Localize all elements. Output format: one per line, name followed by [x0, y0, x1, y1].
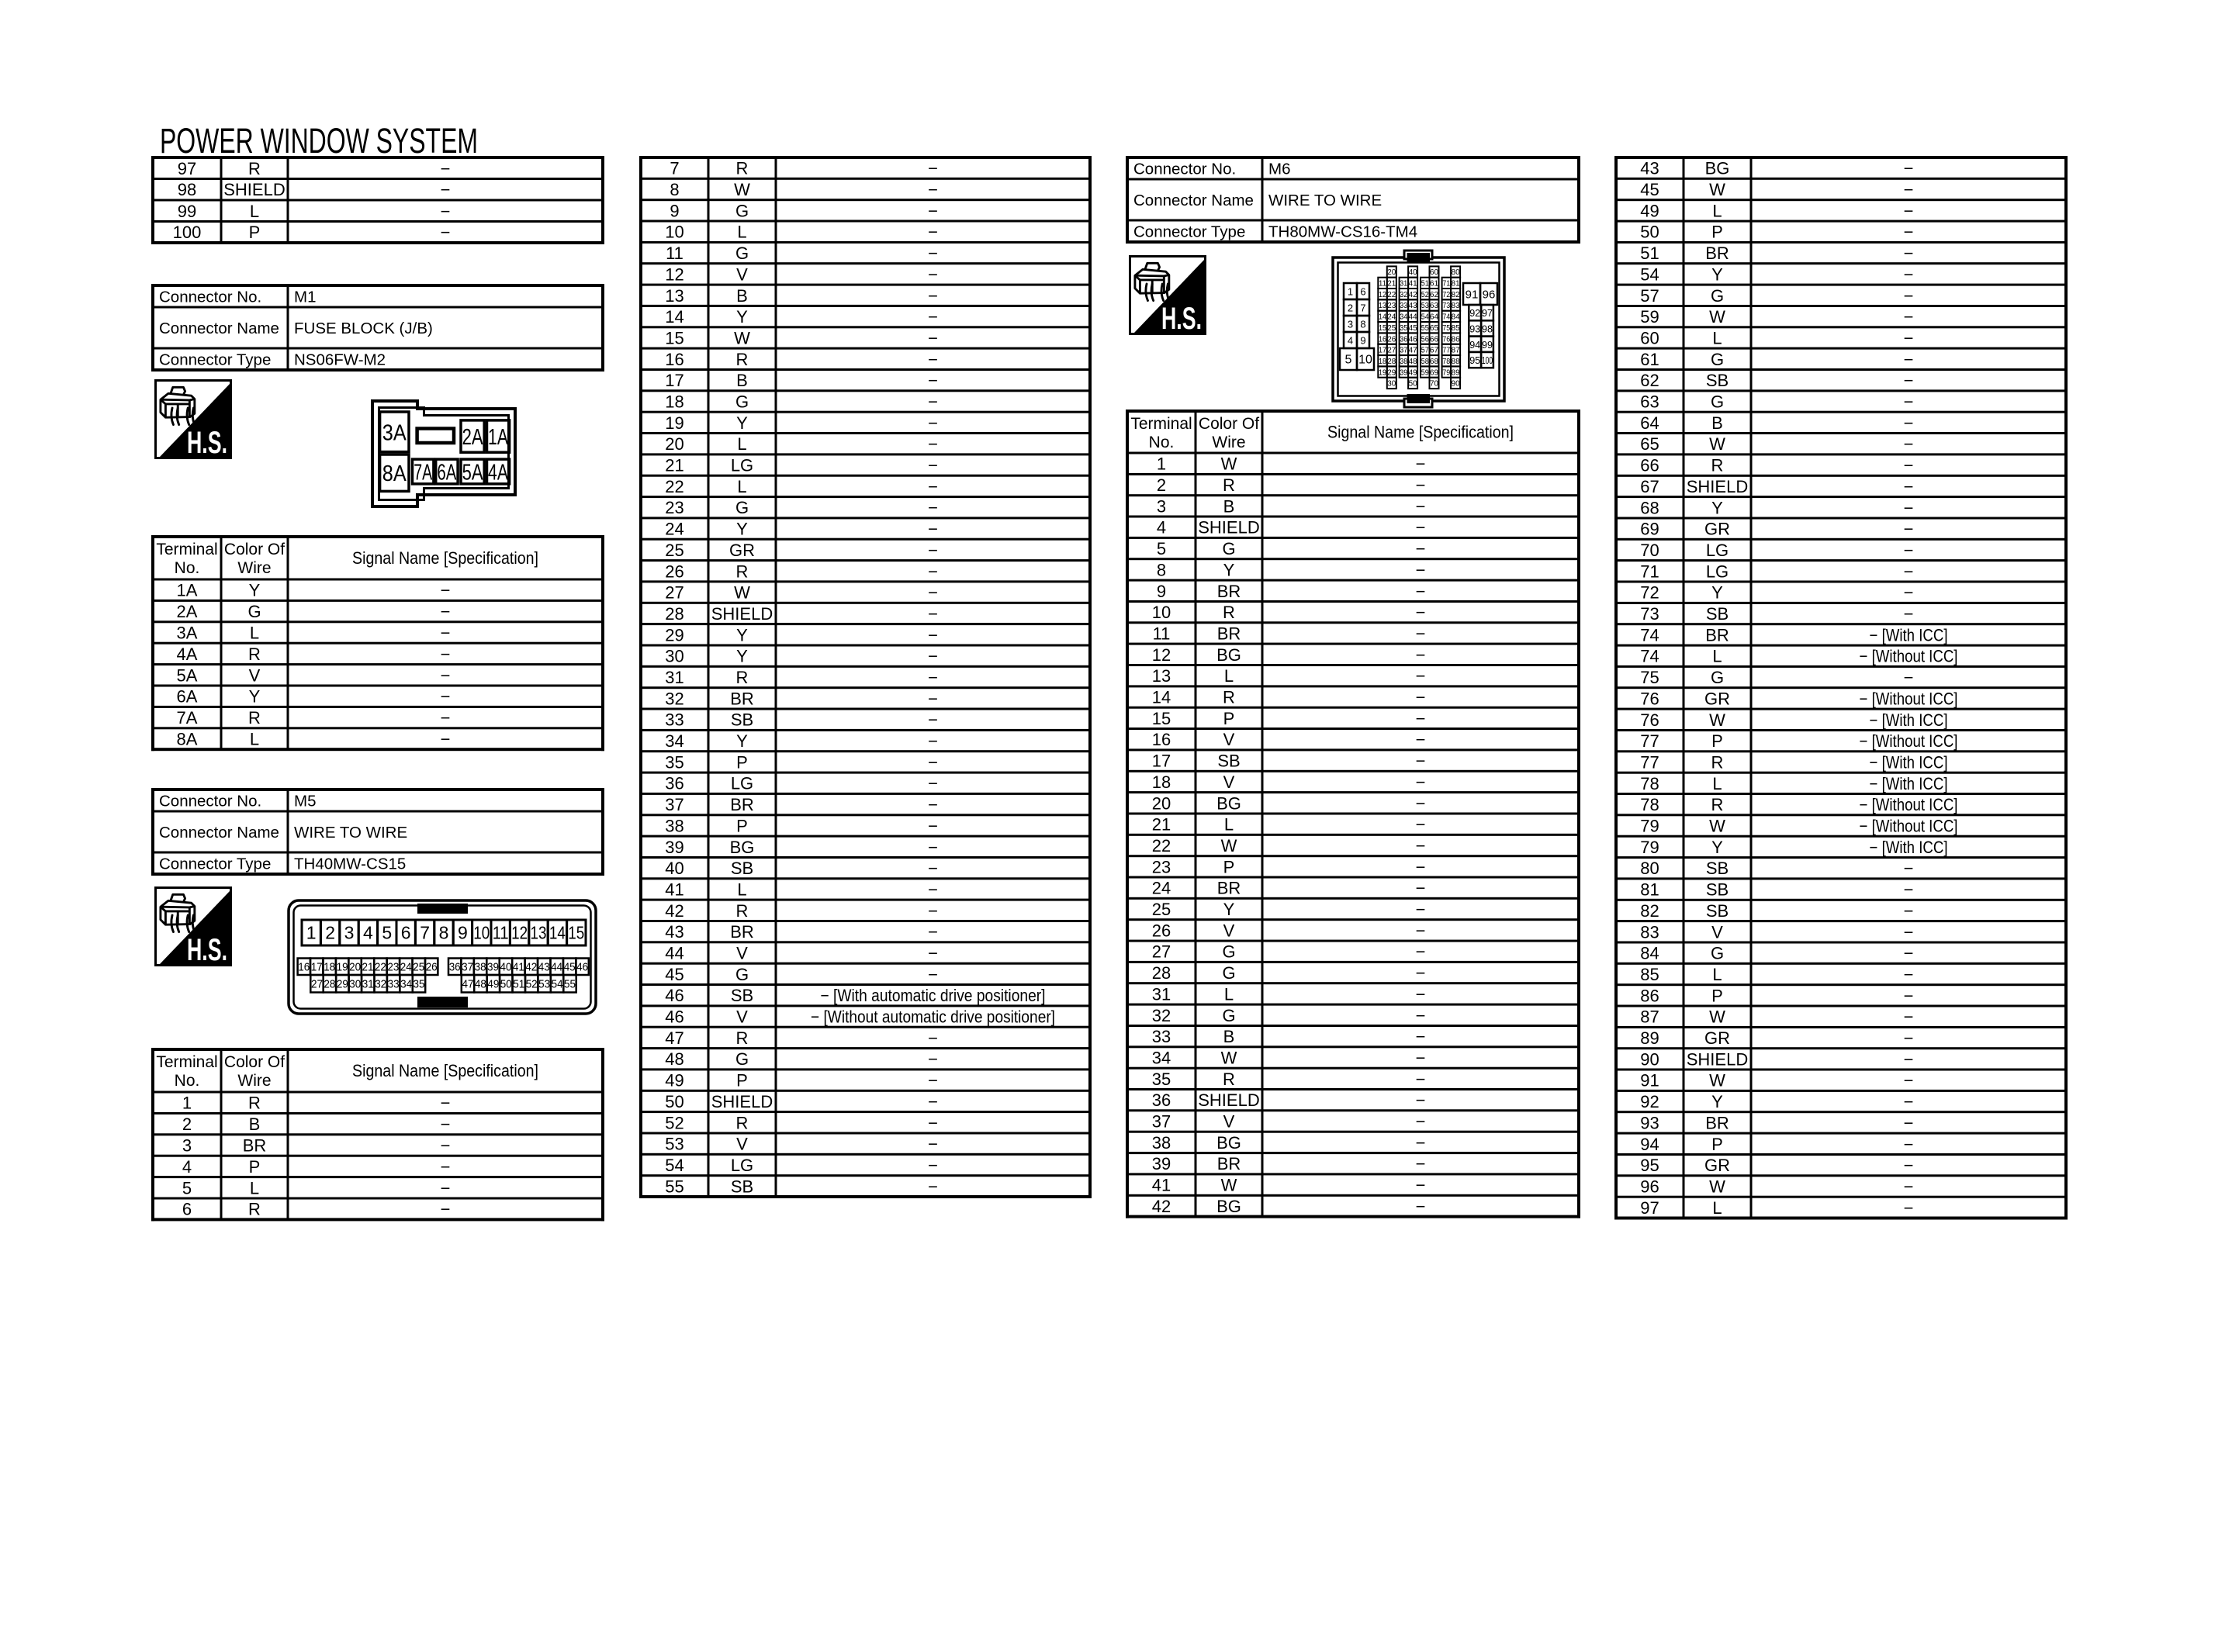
svg-text:L: L [737, 477, 746, 496]
svg-text:17: 17 [1379, 347, 1386, 355]
svg-text:G: G [735, 201, 749, 220]
svg-text:P: P [1223, 857, 1235, 876]
svg-text:SHIELD: SHIELD [1198, 1090, 1259, 1110]
svg-text:−: − [1904, 201, 1914, 220]
svg-text:19: 19 [665, 413, 683, 433]
svg-text:−: − [1416, 815, 1426, 835]
svg-text:37: 37 [1400, 347, 1407, 355]
svg-text:16: 16 [298, 961, 310, 974]
svg-text:97: 97 [178, 159, 196, 178]
svg-text:V: V [1223, 1112, 1235, 1132]
svg-text:43: 43 [665, 922, 683, 942]
svg-text:−: − [441, 1200, 451, 1219]
svg-text:SB: SB [731, 1177, 753, 1196]
svg-text:BR: BR [730, 795, 754, 814]
svg-text:63: 63 [1430, 302, 1438, 310]
svg-text:−: − [928, 1049, 938, 1069]
svg-text:−: − [928, 901, 938, 921]
svg-text:3A: 3A [177, 624, 198, 643]
svg-text:R: R [248, 159, 261, 178]
svg-text:24: 24 [665, 520, 683, 539]
svg-text:31: 31 [362, 978, 374, 991]
svg-text:V: V [736, 264, 748, 284]
svg-text:G: G [1711, 286, 1724, 306]
svg-text:7A: 7A [414, 461, 432, 486]
svg-text:G: G [735, 244, 749, 263]
svg-text:R: R [248, 645, 261, 664]
svg-text:V: V [249, 665, 261, 685]
svg-text:L: L [1712, 965, 1722, 984]
svg-text:−: − [928, 264, 938, 284]
svg-text:59: 59 [1421, 368, 1429, 377]
svg-text:1: 1 [182, 1094, 192, 1113]
svg-text:96: 96 [1640, 1177, 1659, 1197]
svg-text:70: 70 [1430, 380, 1438, 389]
svg-text:72: 72 [1442, 291, 1450, 299]
svg-text:−: − [1904, 477, 1914, 496]
svg-text:38: 38 [1400, 358, 1407, 366]
svg-text:−: − [441, 223, 451, 242]
svg-text:−: − [1416, 1070, 1426, 1089]
svg-text:−: − [441, 1094, 451, 1113]
svg-text:V: V [1223, 772, 1235, 792]
svg-text:−: − [928, 350, 938, 369]
svg-text:78: 78 [1640, 795, 1659, 814]
svg-text:91: 91 [1466, 289, 1479, 302]
svg-text:34: 34 [400, 978, 412, 991]
svg-text:25: 25 [665, 541, 683, 560]
svg-text:66: 66 [1640, 456, 1659, 475]
svg-text:73: 73 [1640, 604, 1659, 624]
svg-text:11: 11 [666, 244, 683, 263]
svg-text:54: 54 [1640, 264, 1659, 284]
svg-text:V: V [736, 1007, 748, 1027]
svg-text:4: 4 [363, 923, 373, 943]
svg-text:90: 90 [1452, 380, 1460, 389]
svg-text:4A: 4A [488, 461, 508, 486]
svg-text:26: 26 [1152, 921, 1171, 940]
svg-text:−: − [928, 583, 938, 603]
svg-text:−: − [928, 434, 938, 454]
svg-text:W: W [1221, 836, 1237, 855]
svg-text:80: 80 [1640, 859, 1659, 878]
svg-text:− [With ICC]: − [With ICC] [1870, 774, 1948, 793]
svg-text:BR: BR [1705, 244, 1729, 263]
svg-text:−: − [1904, 583, 1914, 603]
svg-text:LG: LG [1706, 562, 1729, 581]
svg-text:−: − [1416, 730, 1426, 749]
svg-text:−: − [928, 244, 938, 263]
svg-text:G: G [735, 392, 749, 412]
svg-text:8: 8 [670, 180, 679, 199]
svg-text:G: G [1711, 392, 1724, 412]
svg-text:14: 14 [665, 307, 683, 327]
svg-text:40: 40 [500, 961, 512, 974]
svg-text:R: R [1711, 456, 1724, 475]
svg-text:73: 73 [1442, 302, 1450, 310]
svg-text:W: W [1709, 180, 1725, 199]
svg-text:1: 1 [1157, 454, 1166, 474]
svg-text:1A: 1A [488, 425, 508, 450]
svg-text:W: W [1221, 454, 1237, 474]
svg-text:27: 27 [665, 583, 683, 603]
svg-text:−: − [1416, 454, 1426, 474]
svg-text:5: 5 [382, 923, 392, 943]
svg-text:44: 44 [1409, 313, 1417, 322]
svg-text:Color Of: Color Of [224, 1053, 285, 1071]
svg-text:46: 46 [665, 1007, 683, 1027]
svg-text:38: 38 [665, 816, 683, 835]
svg-text:V: V [1711, 922, 1723, 942]
svg-text:6: 6 [1360, 286, 1365, 298]
svg-text:POWER WINDOW SYSTEM: POWER WINDOW SYSTEM [160, 121, 478, 161]
svg-text:SB: SB [1706, 604, 1729, 624]
svg-text:R: R [736, 1028, 749, 1048]
svg-text:Connector No.: Connector No. [159, 289, 261, 306]
svg-text:18: 18 [665, 392, 683, 412]
svg-text:G: G [1222, 942, 1235, 962]
svg-text:R: R [1223, 688, 1235, 707]
svg-text:−: − [1416, 1154, 1426, 1173]
svg-text:71: 71 [1442, 280, 1450, 289]
svg-text:−: − [928, 477, 938, 496]
svg-text:−: − [1904, 392, 1914, 412]
svg-text:Y: Y [736, 731, 748, 751]
svg-text:10: 10 [1358, 354, 1372, 367]
svg-text:30: 30 [349, 978, 361, 991]
svg-text:21: 21 [1152, 815, 1171, 835]
svg-text:−: − [441, 581, 451, 600]
svg-text:79: 79 [1442, 368, 1450, 377]
svg-text:16: 16 [665, 350, 683, 369]
svg-text:78: 78 [1442, 358, 1450, 366]
svg-text:−: − [1904, 1198, 1914, 1218]
svg-text:L: L [250, 202, 259, 221]
svg-text:WIRE TO WIRE: WIRE TO WIRE [1268, 192, 1382, 209]
svg-text:23: 23 [1387, 302, 1396, 310]
svg-text:78: 78 [1640, 774, 1659, 793]
svg-text:18: 18 [324, 961, 335, 974]
svg-text:56: 56 [1421, 335, 1429, 344]
svg-text:42: 42 [1152, 1197, 1171, 1216]
svg-text:Y: Y [736, 625, 748, 645]
svg-text:79: 79 [1640, 838, 1659, 857]
svg-text:P: P [1711, 223, 1723, 242]
svg-text:79: 79 [1640, 817, 1659, 836]
svg-text:LG: LG [731, 774, 753, 793]
svg-text:P: P [1711, 986, 1723, 1005]
svg-text:43: 43 [1409, 302, 1417, 310]
svg-text:25: 25 [1387, 324, 1396, 333]
svg-text:−: − [928, 286, 938, 306]
svg-text:77: 77 [1640, 753, 1659, 772]
svg-text:8A: 8A [177, 730, 198, 749]
svg-text:14: 14 [1379, 313, 1386, 322]
svg-text:40: 40 [665, 859, 683, 878]
svg-text:−: − [1416, 518, 1426, 537]
svg-text:−: − [1904, 1071, 1914, 1090]
svg-text:No.: No. [1149, 434, 1175, 451]
svg-text:BG: BG [1216, 645, 1241, 665]
svg-text:18: 18 [1152, 772, 1171, 792]
svg-text:95: 95 [1640, 1156, 1659, 1175]
svg-text:25: 25 [1152, 900, 1171, 919]
svg-text:−: − [1416, 1049, 1426, 1068]
svg-text:38: 38 [1152, 1133, 1171, 1153]
svg-text:19: 19 [1379, 368, 1386, 377]
svg-text:37: 37 [665, 795, 683, 814]
svg-text:Color Of: Color Of [224, 541, 285, 558]
svg-text:−: − [1904, 1135, 1914, 1154]
svg-text:100: 100 [173, 223, 202, 242]
svg-text:−: − [441, 624, 451, 643]
svg-text:53: 53 [665, 1135, 683, 1154]
svg-text:−: − [1904, 901, 1914, 921]
svg-text:W: W [734, 583, 750, 603]
svg-text:P: P [1711, 731, 1723, 751]
svg-text:36: 36 [1152, 1090, 1171, 1110]
svg-text:65: 65 [1430, 324, 1438, 333]
svg-text:33: 33 [388, 978, 400, 991]
svg-text:92: 92 [1640, 1092, 1659, 1111]
svg-text:−: − [928, 880, 938, 900]
svg-text:42: 42 [1409, 291, 1417, 299]
svg-text:−: − [1904, 371, 1914, 390]
svg-text:W: W [1709, 434, 1725, 454]
svg-text:32: 32 [375, 978, 386, 991]
svg-text:21: 21 [1387, 280, 1396, 289]
svg-text:72: 72 [1640, 583, 1659, 603]
svg-text:SB: SB [1706, 859, 1729, 878]
svg-text:−: − [1416, 963, 1426, 983]
svg-text:70: 70 [1640, 541, 1659, 560]
svg-text:15: 15 [1152, 709, 1171, 728]
svg-text:17: 17 [311, 961, 323, 974]
svg-text:Terminal: Terminal [156, 1053, 217, 1071]
svg-text:16: 16 [1152, 730, 1171, 749]
svg-text:62: 62 [1430, 291, 1438, 299]
svg-text:65: 65 [1640, 434, 1659, 454]
svg-text:−: − [1904, 1177, 1914, 1197]
svg-text:P: P [249, 223, 261, 242]
svg-text:−: − [928, 328, 938, 347]
svg-text:−: − [1904, 965, 1914, 984]
svg-text:−: − [1904, 520, 1914, 539]
svg-text:13: 13 [1152, 666, 1171, 686]
svg-text:Y: Y [1711, 838, 1723, 857]
svg-text:75: 75 [1640, 668, 1659, 687]
svg-text:39: 39 [1400, 368, 1407, 377]
svg-text:14: 14 [1152, 688, 1171, 707]
svg-text:27: 27 [1152, 942, 1171, 962]
svg-text:61: 61 [1430, 280, 1438, 289]
svg-text:B: B [249, 1115, 261, 1134]
svg-text:−: − [1904, 880, 1914, 900]
svg-text:−: − [928, 1071, 938, 1090]
svg-text:94: 94 [1640, 1135, 1659, 1154]
svg-text:Y: Y [1711, 1092, 1723, 1111]
svg-text:−: − [1416, 942, 1426, 962]
svg-text:91: 91 [1640, 1071, 1659, 1090]
svg-text:30: 30 [1387, 380, 1396, 389]
svg-text:1: 1 [1348, 286, 1353, 298]
svg-text:−: − [1416, 921, 1426, 940]
svg-text:NS06FW-M2: NS06FW-M2 [294, 351, 386, 369]
svg-text:W: W [1709, 710, 1725, 730]
svg-text:48: 48 [1409, 358, 1417, 366]
svg-text:77: 77 [1640, 731, 1659, 751]
svg-text:−: − [1416, 1133, 1426, 1153]
svg-text:G: G [1222, 539, 1235, 558]
svg-text:38: 38 [475, 961, 486, 974]
svg-text:32: 32 [665, 689, 683, 708]
svg-text:51: 51 [513, 978, 524, 991]
svg-text:−: − [1904, 350, 1914, 369]
svg-text:24: 24 [1152, 879, 1171, 898]
svg-text:53: 53 [1421, 302, 1429, 310]
svg-text:30: 30 [665, 647, 683, 666]
svg-text:57: 57 [1421, 347, 1429, 355]
svg-text:−: − [928, 1177, 938, 1196]
svg-text:24: 24 [1387, 313, 1396, 322]
svg-text:−: − [1416, 1112, 1426, 1132]
svg-text:41: 41 [665, 880, 683, 900]
svg-text:49: 49 [665, 1071, 683, 1090]
svg-text:81: 81 [1452, 280, 1460, 289]
svg-text:13: 13 [665, 286, 683, 306]
svg-text:Connector Name: Connector Name [159, 320, 279, 337]
svg-text:5: 5 [1157, 539, 1166, 558]
svg-text:−: − [441, 159, 451, 178]
svg-text:92: 92 [1469, 307, 1480, 319]
svg-text:G: G [735, 965, 749, 984]
svg-text:26: 26 [665, 562, 683, 581]
svg-text:99: 99 [1482, 339, 1493, 351]
svg-text:32: 32 [1400, 291, 1407, 299]
svg-text:−: − [1904, 498, 1914, 517]
svg-text:22: 22 [375, 961, 386, 974]
svg-text:BR: BR [730, 922, 754, 942]
svg-text:28: 28 [324, 978, 335, 991]
svg-text:13: 13 [531, 923, 547, 943]
svg-text:86: 86 [1640, 986, 1659, 1005]
svg-text:−: − [928, 223, 938, 242]
svg-text:−: − [441, 708, 451, 728]
svg-text:54: 54 [552, 978, 563, 991]
svg-text:85: 85 [1452, 324, 1460, 333]
svg-text:−: − [1416, 603, 1426, 622]
svg-text:10: 10 [665, 223, 683, 242]
svg-text:54: 54 [1421, 313, 1429, 322]
svg-text:−: − [1416, 496, 1426, 516]
svg-text:L: L [1224, 984, 1234, 1004]
svg-text:− [Without ICC]: − [Without ICC] [1860, 689, 1958, 708]
svg-text:94: 94 [1469, 339, 1480, 351]
svg-text:G: G [1222, 1006, 1235, 1025]
svg-text:−: − [928, 1028, 938, 1048]
svg-text:−: − [928, 371, 938, 390]
svg-text:43: 43 [1640, 159, 1659, 178]
svg-text:69: 69 [1430, 368, 1438, 377]
svg-text:BG: BG [1216, 793, 1241, 813]
svg-text:−: − [1416, 539, 1426, 558]
svg-text:87: 87 [1640, 1007, 1659, 1027]
svg-text:−: − [1904, 1007, 1914, 1027]
svg-text:− [With ICC]: − [With ICC] [1870, 753, 1948, 772]
svg-text:W: W [1709, 307, 1725, 327]
svg-text:−: − [928, 689, 938, 708]
svg-text:9: 9 [670, 201, 679, 220]
svg-text:SB: SB [1217, 752, 1240, 771]
svg-text:76: 76 [1640, 710, 1659, 730]
svg-text:BR: BR [1705, 1113, 1729, 1132]
svg-text:SHIELD: SHIELD [1687, 477, 1748, 496]
svg-text:L: L [1712, 1198, 1722, 1218]
svg-text:45: 45 [665, 965, 683, 984]
svg-text:SHIELD: SHIELD [711, 604, 773, 624]
svg-text:B: B [1223, 496, 1235, 516]
svg-text:−: − [1904, 413, 1914, 433]
svg-text:15: 15 [665, 328, 683, 347]
svg-text:Connector No.: Connector No. [159, 793, 261, 810]
svg-text:P: P [736, 816, 748, 835]
svg-text:R: R [1223, 475, 1235, 495]
svg-text:W: W [1221, 1049, 1237, 1068]
svg-text:82: 82 [1640, 901, 1659, 921]
svg-text:−: − [1904, 1113, 1914, 1132]
svg-text:GR: GR [729, 541, 755, 560]
svg-text:− [Without automatic drive pos: − [Without automatic drive positioner] [811, 1007, 1055, 1027]
svg-text:64: 64 [1640, 413, 1659, 433]
svg-text:H.S.: H.S. [1161, 302, 1202, 336]
svg-text:−: − [1904, 307, 1914, 327]
svg-text:L: L [250, 624, 259, 643]
svg-text:23: 23 [387, 961, 399, 974]
svg-text:8: 8 [439, 923, 449, 943]
svg-text:BR: BR [1705, 625, 1729, 645]
svg-text:45: 45 [1409, 324, 1417, 333]
svg-text:Signal Name [Specification]: Signal Name [Specification] [352, 1061, 538, 1080]
svg-text:68: 68 [1640, 498, 1659, 517]
svg-text:86: 86 [1452, 335, 1460, 344]
svg-text:−: − [1904, 541, 1914, 560]
svg-text:27: 27 [1387, 347, 1396, 355]
svg-text:49: 49 [487, 978, 499, 991]
svg-text:WIRE TO WIRE: WIRE TO WIRE [294, 824, 407, 842]
svg-text:−: − [928, 201, 938, 220]
svg-text:75: 75 [1442, 324, 1450, 333]
svg-text:3A: 3A [382, 420, 407, 445]
svg-text:−: − [1416, 836, 1426, 855]
svg-text:R: R [736, 901, 749, 921]
svg-text:−: − [1416, 879, 1426, 898]
svg-text:52: 52 [665, 1113, 683, 1132]
svg-text:Y: Y [1711, 264, 1723, 284]
svg-text:LG: LG [1706, 541, 1729, 560]
svg-text:−: − [928, 944, 938, 963]
svg-text:31: 31 [665, 668, 683, 687]
svg-text:Y: Y [736, 520, 748, 539]
svg-text:11: 11 [1153, 624, 1171, 644]
svg-text:− [Without ICC]: − [Without ICC] [1860, 647, 1958, 666]
svg-text:R: R [736, 562, 749, 581]
svg-text:−: − [1904, 456, 1914, 475]
svg-text:−: − [441, 1157, 451, 1177]
svg-text:−: − [1416, 900, 1426, 919]
svg-text:89: 89 [1640, 1028, 1659, 1048]
svg-text:−: − [928, 562, 938, 581]
svg-text:GR: GR [1704, 520, 1730, 539]
